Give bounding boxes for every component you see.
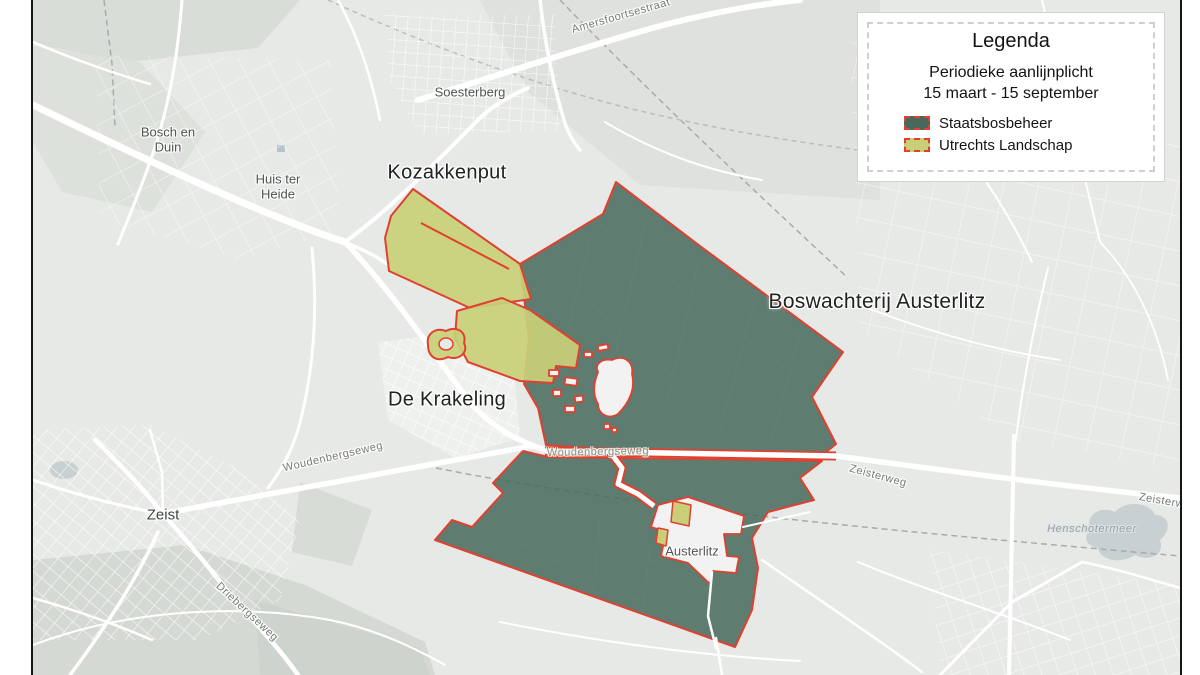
legend-subtitle: Periodieke aanlijnplicht 15 maart - 15 s…: [858, 63, 1164, 105]
place-label-zeist: Zeist: [147, 507, 180, 524]
map-canvas: Kozakkenput De Krakeling Boswachterij Au…: [33, 0, 1180, 675]
staatsbosbeheer-swatch: [904, 116, 930, 130]
water-label-henschotermeer: Henschotermeer: [1047, 523, 1137, 535]
place-label-austerlitz: Austerlitz: [665, 545, 718, 560]
place-label-soesterberg: Soesterberg: [435, 86, 506, 101]
place-label-bosch-en-duin: Bosch en Duin: [132, 125, 204, 154]
map-frame-right: [1180, 0, 1182, 675]
legend-item-label: Staatsbosbeheer: [939, 115, 1052, 132]
legend-item-utrechts-landschap: Utrechts Landschap: [904, 137, 1164, 154]
legend-item-label: Utrechts Landschap: [939, 137, 1072, 154]
area-label-de-krakeling: De Krakeling: [388, 389, 506, 412]
utrechts-landschap-hole: [439, 338, 453, 350]
legend-item-staatsbosbeheer: Staatsbosbeheer: [904, 115, 1164, 132]
road-label-woudenbergseweg-east: Woudenbergseweg: [547, 445, 649, 459]
map-document: Kozakkenput De Krakeling Boswachterij Au…: [0, 0, 1200, 675]
area-label-boswachterij-austerlitz: Boswachterij Austerlitz: [769, 290, 986, 314]
map-frame-left: [31, 0, 33, 675]
utrechts-landschap-swatch: [904, 138, 930, 152]
legend-items: Staatsbosbeheer Utrechts Landschap: [904, 115, 1164, 154]
legend-subtitle-line1: Periodieke aanlijnplicht: [858, 63, 1164, 84]
legend: Legenda Periodieke aanlijnplicht 15 maar…: [857, 12, 1165, 182]
area-label-kozakkenput: Kozakkenput: [388, 162, 507, 185]
place-label-huis-ter-heide: Huis ter Heide: [247, 172, 309, 201]
legend-title: Legenda: [858, 30, 1164, 53]
legend-subtitle-line2: 15 maart - 15 september: [858, 84, 1164, 105]
